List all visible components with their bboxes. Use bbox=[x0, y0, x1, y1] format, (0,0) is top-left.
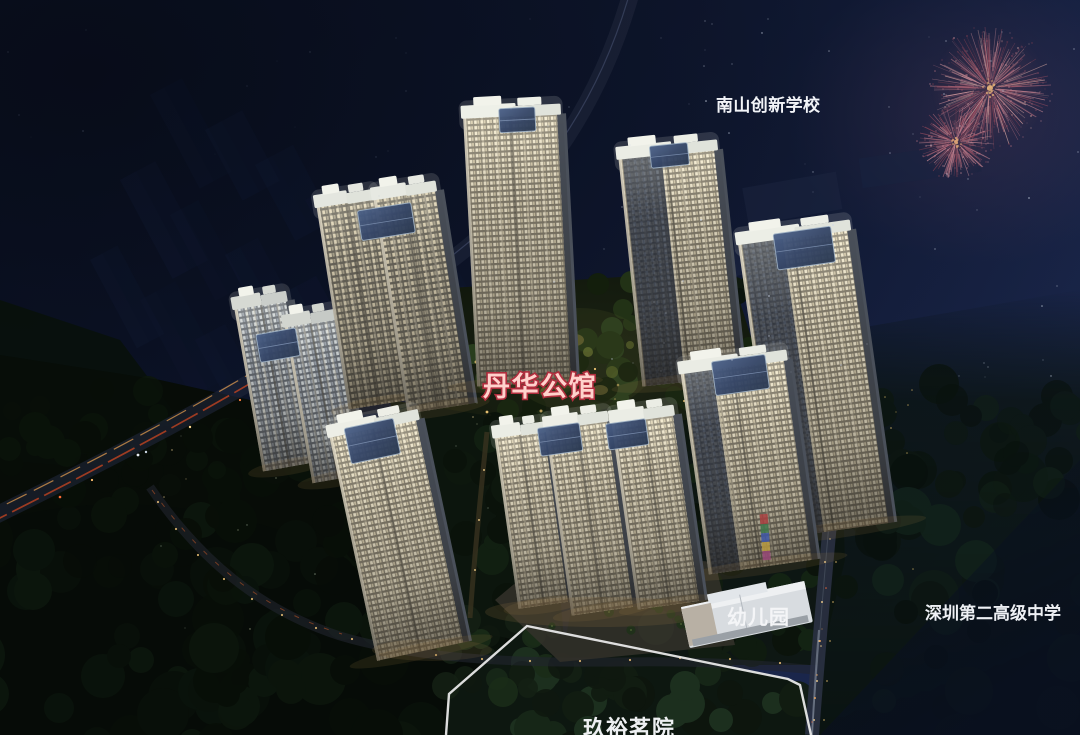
svg-text:深圳第二高级中学: 深圳第二高级中学 bbox=[925, 603, 1061, 623]
svg-text:丹华公馆: 丹华公馆 bbox=[483, 371, 597, 402]
svg-text:玖裕茗院: 玖裕茗院 bbox=[583, 716, 675, 735]
svg-text:南山创新学校: 南山创新学校 bbox=[716, 95, 821, 115]
svg-text:幼儿园: 幼儿园 bbox=[727, 605, 790, 629]
